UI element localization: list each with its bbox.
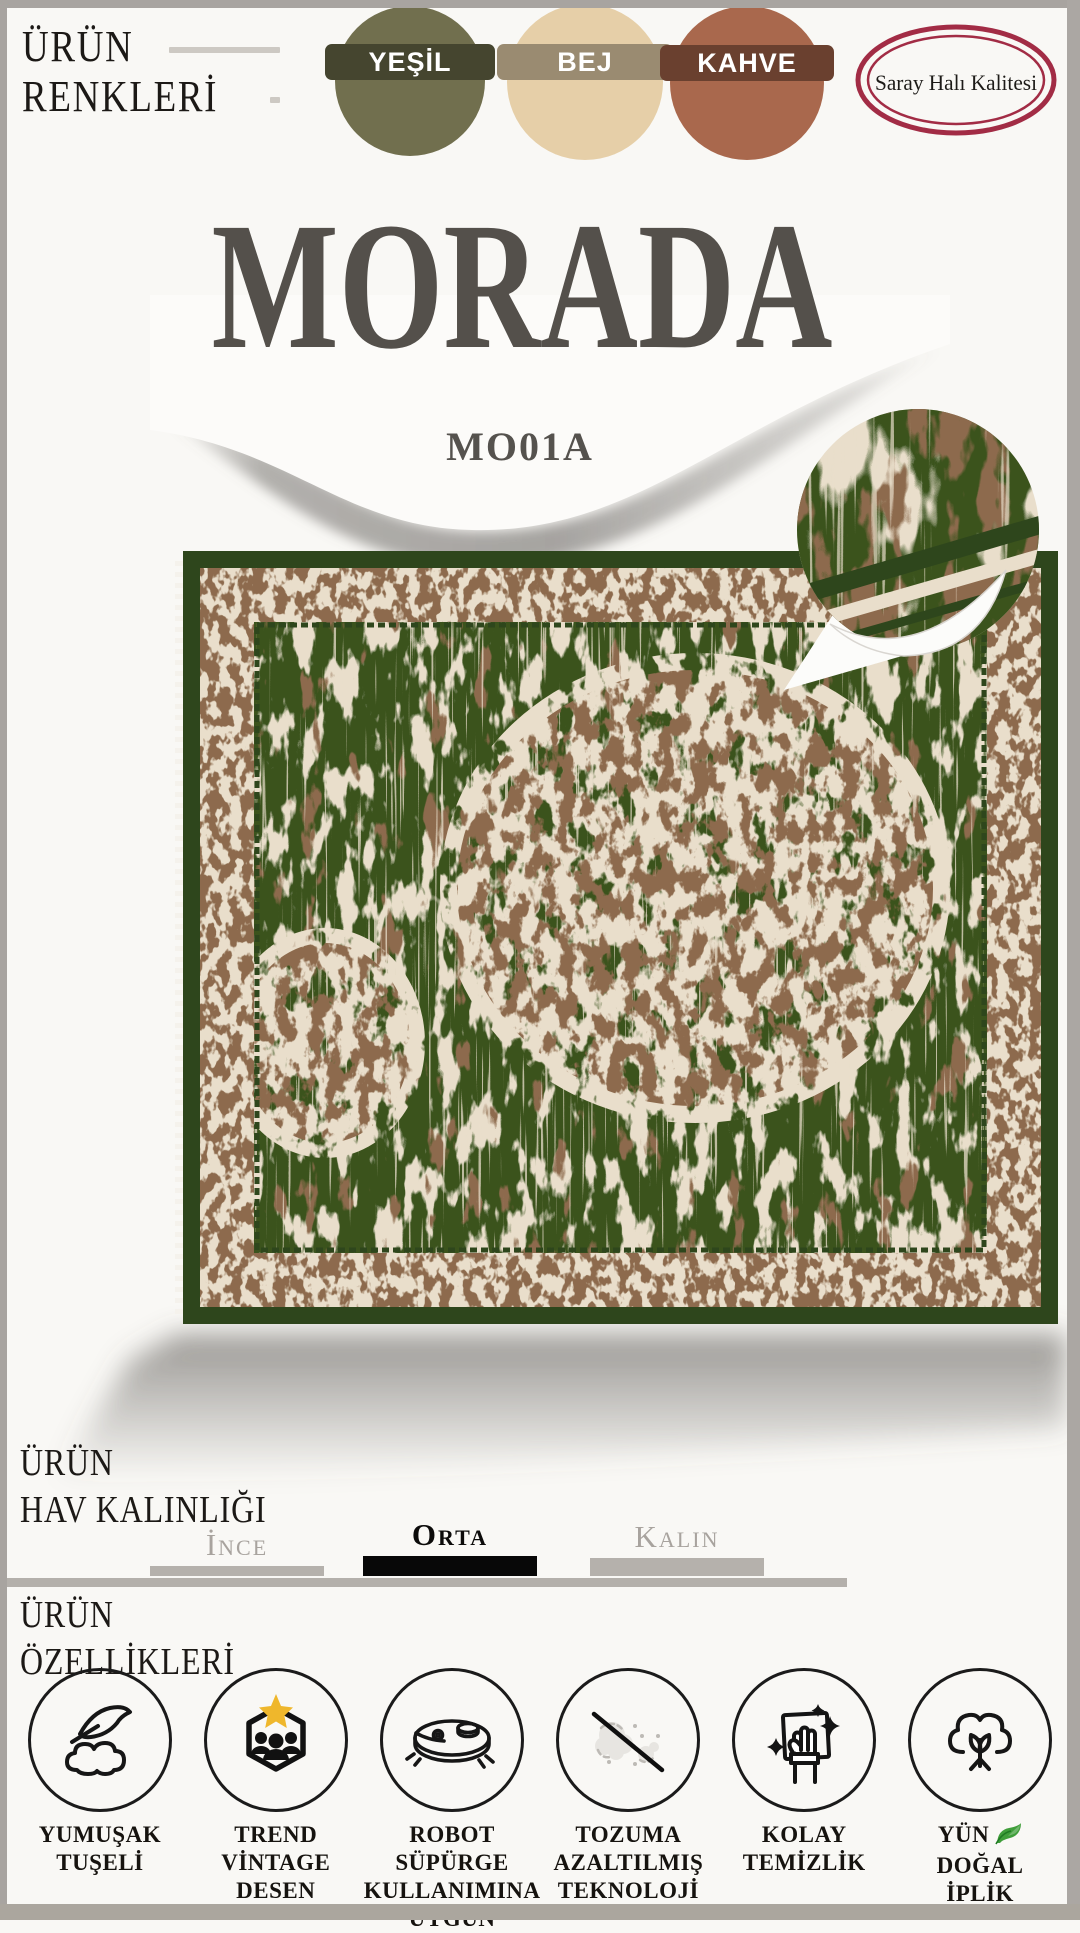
pile-option-label: İnce [206, 1529, 268, 1560]
pile-option-label: Orta [412, 1519, 488, 1550]
product-name: MORADA [136, 196, 909, 378]
robot-vacuum-icon [380, 1668, 524, 1812]
pile-option-bar [150, 1566, 324, 1576]
page-frame-bottom [0, 1904, 1080, 1920]
feature-dust-reduced: TOZUMA AZALTILMIŞ TEKNOLOJİ [540, 1668, 716, 1933]
heading-line: RENKLERİ [22, 72, 218, 122]
pile-option-kalin[interactable]: Kalın [590, 1488, 764, 1576]
product-card: { "page": { "background": "#f9f8f5", "fr… [0, 0, 1080, 1920]
feather-cloud-icon [28, 1668, 172, 1812]
heading-dash-line [270, 97, 280, 103]
color-swatch-label: KAHVE [660, 45, 834, 81]
color-swatch-label: BEJ [497, 44, 673, 80]
color-swatch-bej[interactable]: BEJ [507, 4, 663, 160]
product-colors-heading: ÜRÜN RENKLERİ [22, 22, 272, 122]
badge-text: Saray Halı Kalitesi [875, 70, 1037, 95]
rug-zoom-detail-bubble [778, 402, 1058, 702]
feature-label: YÜN DOĞAL İPLİK [937, 1821, 1024, 1908]
heading-line: ÜRÜN [20, 1592, 235, 1639]
heading-dash-line [169, 47, 280, 53]
pile-option-bar [590, 1558, 764, 1576]
feature-robot-vacuum: ROBOT SÜPÜRGE KULLANIMINA UYGUN [364, 1668, 541, 1933]
quality-badge: Saray Halı Kalitesi [853, 22, 1059, 138]
trend-people-star-icon [204, 1668, 348, 1812]
hand-cleaning-icon [732, 1668, 876, 1812]
pile-option-bar [363, 1556, 537, 1576]
feature-label: YUMUŞAK TUŞELİ [39, 1821, 161, 1877]
feature-soft-touch: YUMUŞAK TUŞELİ [12, 1668, 188, 1933]
page-frame-left [0, 0, 7, 1920]
pile-option-orta[interactable]: Orta [363, 1488, 537, 1576]
feature-natural-wool: YÜN DOĞAL İPLİK [892, 1668, 1068, 1933]
color-swatch-yesil[interactable]: YEŞİL [335, 6, 485, 156]
feature-trend-vintage: TREND VİNTAGE DESEN [188, 1668, 364, 1933]
color-swatch-kahve[interactable]: KAHVE [670, 6, 824, 160]
section-divider-line [7, 1578, 847, 1587]
green-leaf-icon [995, 1822, 1022, 1852]
feature-label: TREND VİNTAGE DESEN [221, 1821, 330, 1905]
pile-option-label: Kalın [635, 1521, 720, 1552]
page-frame-right [1067, 0, 1080, 1920]
feature-easy-clean: KOLAY TEMİZLİK [716, 1668, 892, 1933]
features-row: YUMUŞAK TUŞELİ TREND VİNTAGE DESEN [12, 1668, 1068, 1933]
pile-option-ince[interactable]: İnce [150, 1488, 324, 1576]
feature-label: KOLAY TEMİZLİK [743, 1821, 866, 1877]
no-dust-icon [556, 1668, 700, 1812]
page-frame-top [0, 0, 1080, 8]
heading-line: ÜRÜN [20, 1440, 266, 1487]
feature-label: TOZUMA AZALTILMIŞ TEKNOLOJİ [553, 1821, 703, 1905]
color-swatch-label: YEŞİL [325, 44, 495, 80]
cotton-icon [908, 1668, 1052, 1812]
heading-line: ÜRÜN [22, 22, 133, 72]
